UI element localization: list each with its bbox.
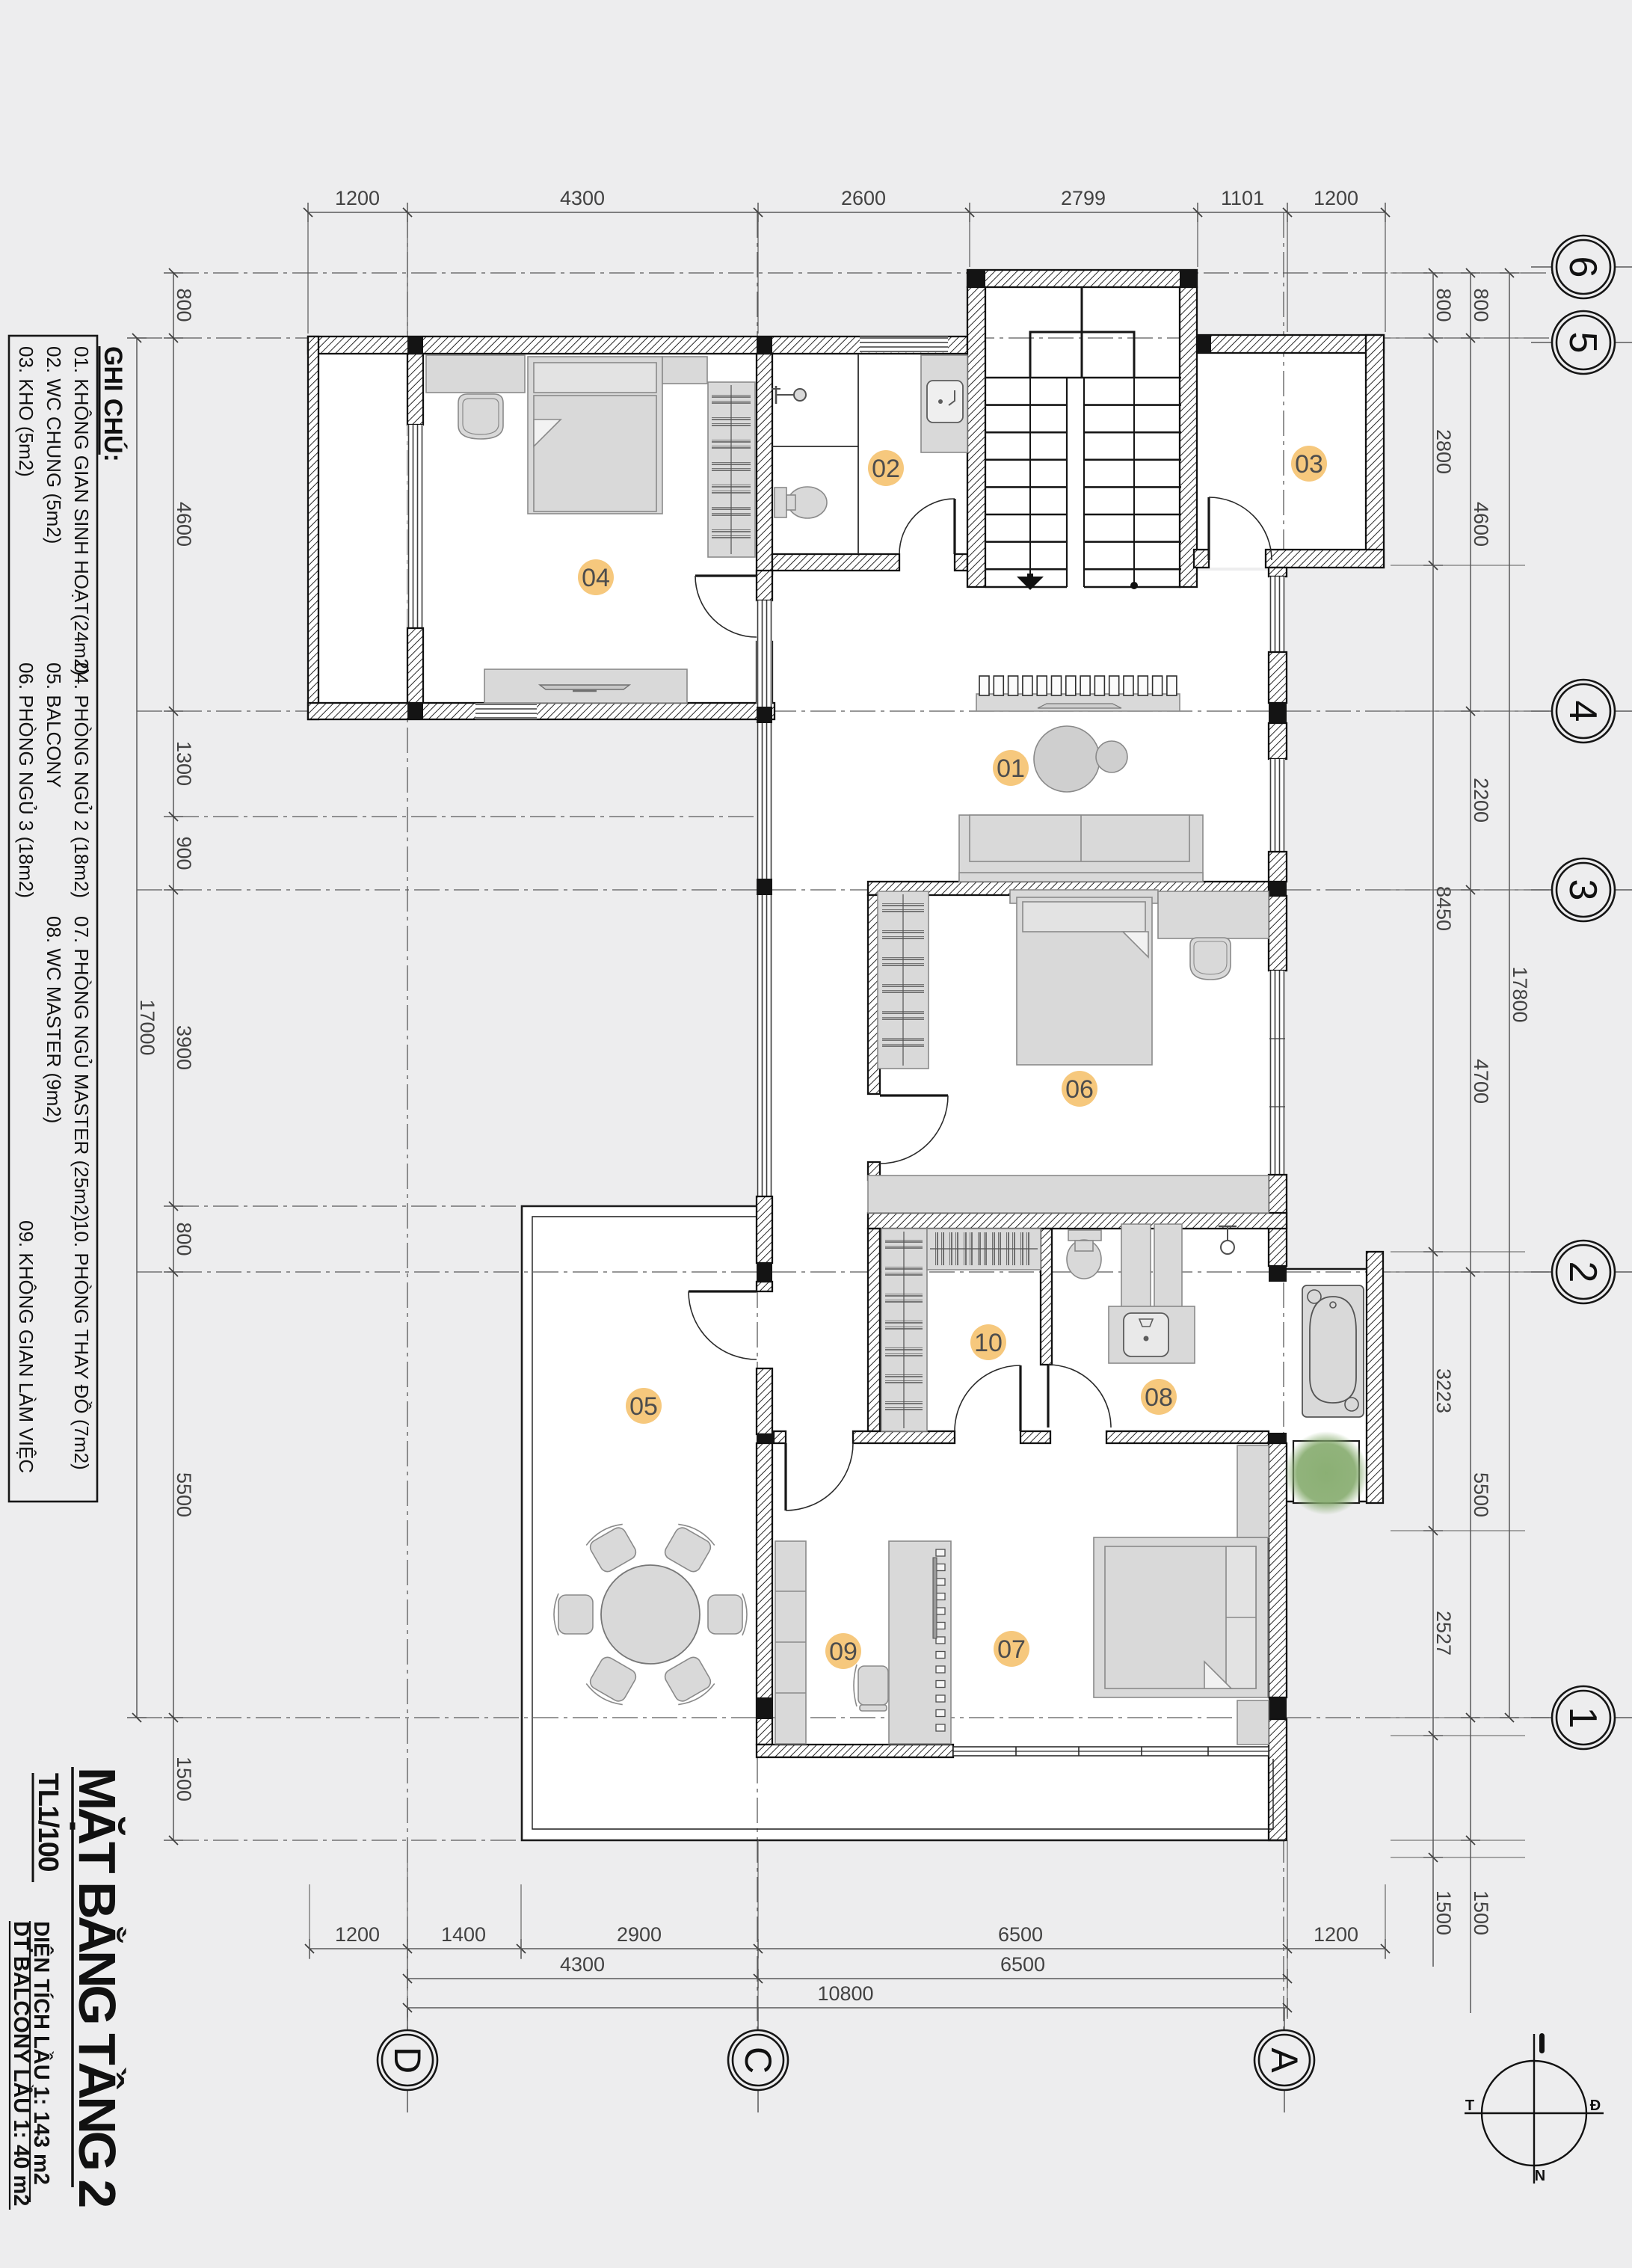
svg-text:C: C	[737, 2047, 779, 2074]
svg-text:5500: 5500	[1470, 1472, 1492, 1517]
svg-text:06. PHÒNG NGỦ 3 (18m2): 06. PHÒNG NGỦ 3 (18m2)	[15, 663, 38, 898]
svg-text:6500: 6500	[1000, 1953, 1045, 1976]
svg-text:800: 800	[173, 1222, 195, 1256]
svg-text:T: T	[1465, 2098, 1474, 2114]
svg-text:2600: 2600	[841, 187, 886, 209]
svg-text:04. PHÒNG NGỦ 2 (18m2): 04. PHÒNG NGỦ 2 (18m2)	[70, 663, 93, 898]
svg-text:07. PHÒNG NGỦ MASTER (25m2): 07. PHÒNG NGỦ MASTER (25m2)	[70, 916, 93, 1222]
svg-text:MẶT BẰNG TẦNG 2: MẶT BẰNG TẦNG 2	[68, 1767, 126, 2207]
svg-text:5500: 5500	[173, 1472, 195, 1517]
svg-text:01. KHÔNG GIAN SINH HOẠT(24m2): 01. KHÔNG GIAN SINH HOẠT(24m2)	[70, 346, 93, 676]
svg-text:DT BALCONY LẦU 1: 40 m2: DT BALCONY LẦU 1: 40 m2	[9, 1921, 34, 2206]
svg-text:02. WC CHUNG (5m2): 02. WC CHUNG (5m2)	[43, 346, 65, 544]
svg-text:1500: 1500	[1432, 1890, 1455, 1935]
svg-text:03. KHO (5m2): 03. KHO (5m2)	[15, 346, 37, 477]
svg-text:10: 10	[974, 1329, 1003, 1357]
svg-text:17000: 17000	[136, 999, 158, 1055]
svg-text:A: A	[1263, 2047, 1305, 2073]
svg-text:1300: 1300	[173, 741, 195, 786]
svg-text:3223: 3223	[1432, 1368, 1455, 1413]
svg-text:GHI CHÚ:: GHI CHÚ:	[99, 346, 127, 462]
svg-text:5: 5	[1561, 332, 1604, 354]
svg-text:8450: 8450	[1432, 886, 1455, 931]
svg-text:08. WC MASTER (9m2): 08. WC MASTER (9m2)	[43, 916, 65, 1123]
svg-text:800: 800	[1432, 288, 1455, 322]
svg-text:900: 900	[173, 836, 195, 870]
svg-text:2200: 2200	[1470, 778, 1492, 823]
svg-text:05. BALCONY: 05. BALCONY	[43, 663, 65, 788]
svg-text:1500: 1500	[173, 1757, 195, 1801]
svg-text:10800: 10800	[817, 1982, 873, 2005]
svg-text:17800: 17800	[1509, 966, 1531, 1022]
svg-text:2799: 2799	[1061, 187, 1106, 209]
svg-text:09. KHÔNG GIAN LÀM VIỆC: 09. KHÔNG GIAN LÀM VIỆC	[15, 1220, 37, 1473]
svg-text:1101: 1101	[1221, 187, 1264, 209]
svg-text:04: 04	[582, 564, 610, 592]
svg-text:02: 02	[872, 455, 900, 483]
svg-text:05: 05	[629, 1392, 658, 1421]
svg-text:4300: 4300	[560, 1953, 605, 1976]
svg-text:4600: 4600	[173, 502, 195, 547]
svg-text:4: 4	[1561, 701, 1604, 722]
svg-text:09: 09	[829, 1638, 857, 1666]
svg-text:01: 01	[997, 755, 1025, 783]
svg-text:1500: 1500	[1470, 1890, 1492, 1935]
svg-text:1200: 1200	[1314, 1923, 1358, 1946]
svg-text:07: 07	[997, 1635, 1026, 1664]
svg-text:4700: 4700	[1470, 1059, 1492, 1104]
svg-text:800: 800	[173, 288, 195, 322]
svg-text:2: 2	[1561, 1261, 1604, 1283]
svg-text:800: 800	[1470, 288, 1492, 322]
svg-text:3: 3	[1561, 879, 1604, 901]
svg-text:10. PHÒNG THAY ĐỒ (7m2): 10. PHÒNG THAY ĐỒ (7m2)	[70, 1220, 93, 1470]
svg-text:4300: 4300	[560, 187, 605, 209]
svg-text:03: 03	[1295, 450, 1323, 479]
svg-text:2900: 2900	[617, 1923, 662, 1946]
svg-text:6500: 6500	[998, 1923, 1043, 1946]
svg-text:1400: 1400	[441, 1923, 486, 1946]
svg-text:08: 08	[1145, 1383, 1173, 1412]
svg-text:06: 06	[1065, 1075, 1094, 1104]
svg-text:4600: 4600	[1470, 502, 1492, 547]
svg-text:D: D	[387, 2047, 428, 2074]
svg-text:2527: 2527	[1432, 1611, 1455, 1656]
svg-text:1200: 1200	[1314, 187, 1358, 209]
svg-text:N: N	[1535, 2168, 1545, 2184]
svg-text:1200: 1200	[335, 1923, 380, 1946]
svg-text:2800: 2800	[1432, 429, 1455, 474]
svg-text:1200: 1200	[335, 187, 380, 209]
svg-text:TL1/100: TL1/100	[32, 1773, 64, 1871]
svg-text:6: 6	[1561, 256, 1604, 278]
svg-text:Đ: Đ	[1590, 2098, 1601, 2114]
svg-text:3900: 3900	[173, 1025, 195, 1070]
svg-text:1: 1	[1561, 1707, 1604, 1729]
